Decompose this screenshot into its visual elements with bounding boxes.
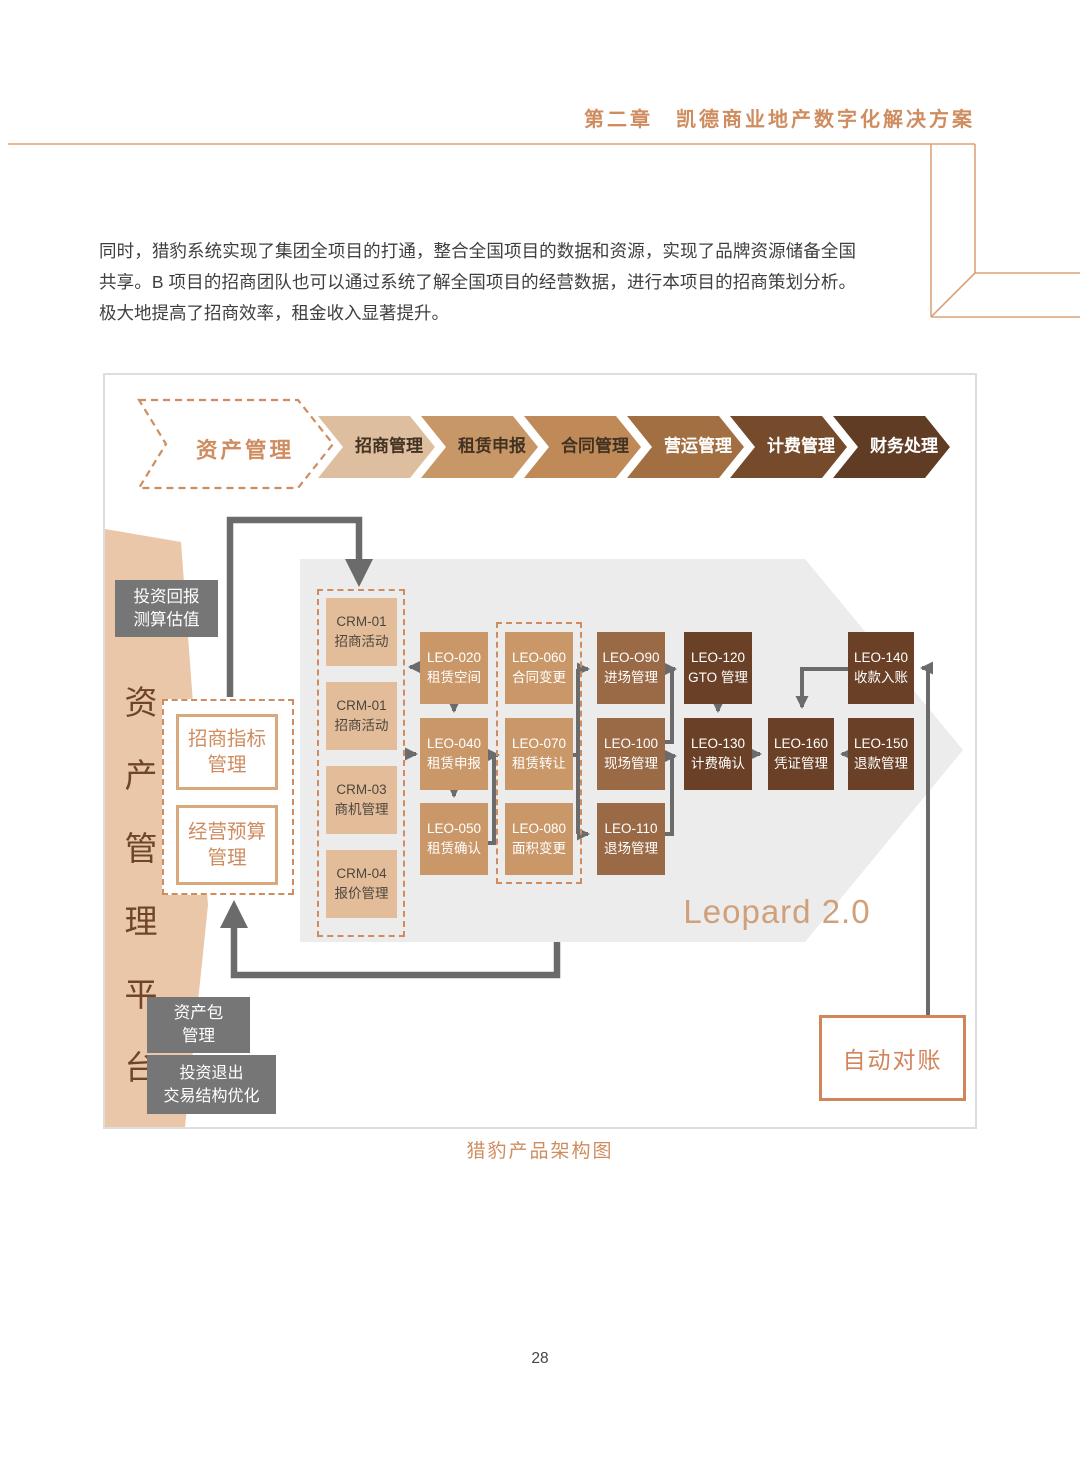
module-crm-01b: CRM-01 招商活动 [326,682,397,750]
document-page: { "page": { "chapter_header": "第二章 凯德商业地… [0,0,1080,1465]
module-leo-080: LEO-080 面积变更 [505,803,573,875]
module-leo-130: LEO-130 计费确认 [684,718,752,790]
module-label: GTO 管理 [688,668,748,688]
auto-reconciliation-box: 自动对账 [819,1015,966,1101]
flow-step-label: 合同管理 [561,435,629,455]
module-code: CRM-01 [336,696,386,716]
module-label: 退场管理 [604,839,658,859]
module-code: LEO-O90 [602,648,659,668]
module-label: 计费确认 [691,754,745,774]
module-label: 报价管理 [335,884,389,904]
module-leo-060: LEO-060 合同变更 [505,632,573,704]
module-code: LEO-100 [604,734,658,754]
module-code: LEO-020 [427,648,481,668]
leopard-version-label: Leopard 2.0 [665,893,889,931]
module-label: 面积变更 [512,839,566,859]
module-leo-140: LEO-140 收款入账 [848,632,914,704]
module-code: LEO-140 [854,648,908,668]
module-code: LEO-120 [691,648,745,668]
module-label: 租赁空间 [427,668,481,688]
module-label: 退款管理 [854,754,908,774]
flow-step-label: 资产管理 [196,438,294,463]
module-leo-150: LEO-150 退款管理 [848,718,914,790]
flow-step-label: 财务处理 [869,435,938,455]
module-label: 租赁转让 [512,754,566,774]
architecture-diagram: 资产管理 招商管理 租赁申报 合同管理 营运管理 计费管理 财务处理 [103,373,977,1129]
module-label: 合同变更 [512,668,566,688]
flow-step-label: 计费管理 [767,435,835,455]
investment-exit-box: 投资退出 交易结构优化 [147,1055,276,1114]
module-code: LEO-060 [512,648,566,668]
module-leo-160: LEO-160 凭证管理 [768,718,834,790]
body-paragraph: 同时，猎豹系统实现了集团全项目的打通，整合全国项目的数据和资源，实现了品牌资源储… [99,236,856,329]
flow-step-label: 招商管理 [355,435,423,455]
module-leo-050: LEO-050 租赁确认 [420,803,488,875]
module-label: 商机管理 [335,800,389,820]
module-leo-020: LEO-020 租赁空间 [420,632,488,704]
module-leo-110: LEO-110 退场管理 [597,803,665,875]
operating-budget-box: 经营预算 管理 [176,805,278,885]
module-code: LEO-070 [512,734,566,754]
leasing-target-box: 招商指标 管理 [176,714,278,790]
module-code: LEO-040 [427,734,481,754]
module-leo-100: LEO-100 现场管理 [597,718,665,790]
module-crm-04: CRM-04 报价管理 [326,850,397,918]
module-label: 进场管理 [604,668,658,688]
investment-return-box: 投资回报 测算估值 [115,580,218,637]
chapter-header: 第二章 凯德商业地产数字化解决方案 [584,103,975,132]
module-label: 招商活动 [335,716,389,736]
module-leo-120: LEO-120 GTO 管理 [684,632,752,704]
module-leo-090: LEO-O90 进场管理 [597,632,665,704]
flow-step-label: 租赁申报 [458,435,526,455]
figure-caption: 猎豹产品架构图 [0,1136,1080,1163]
flow-chevron-band: 资产管理 招商管理 租赁申报 合同管理 营运管理 计费管理 财务处理 [139,400,950,488]
module-label: 现场管理 [604,754,658,774]
module-label: 招商活动 [335,632,389,652]
flow-step-label: 营运管理 [664,435,732,455]
module-crm-03: CRM-03 商机管理 [326,766,397,834]
module-code: CRM-01 [336,612,386,632]
module-code: LEO-050 [427,819,481,839]
module-label: 收款入账 [854,668,908,688]
page-number: 28 [0,1350,1080,1368]
module-code: LEO-130 [691,734,745,754]
module-code: CRM-04 [336,864,386,884]
module-label: 租赁确认 [427,839,481,859]
module-code: LEO-150 [854,734,908,754]
module-leo-040: LEO-040 租赁申报 [420,718,488,790]
module-leo-070: LEO-070 租赁转让 [505,718,573,790]
module-crm-01a: CRM-01 招商活动 [326,598,397,666]
module-label: 租赁申报 [427,754,481,774]
module-code: LEO-160 [774,734,828,754]
module-code: LEO-110 [604,819,657,839]
module-code: LEO-080 [512,819,566,839]
asset-package-box: 资产包 管理 [147,997,250,1053]
module-label: 凭证管理 [774,754,828,774]
module-code: CRM-03 [336,780,386,800]
